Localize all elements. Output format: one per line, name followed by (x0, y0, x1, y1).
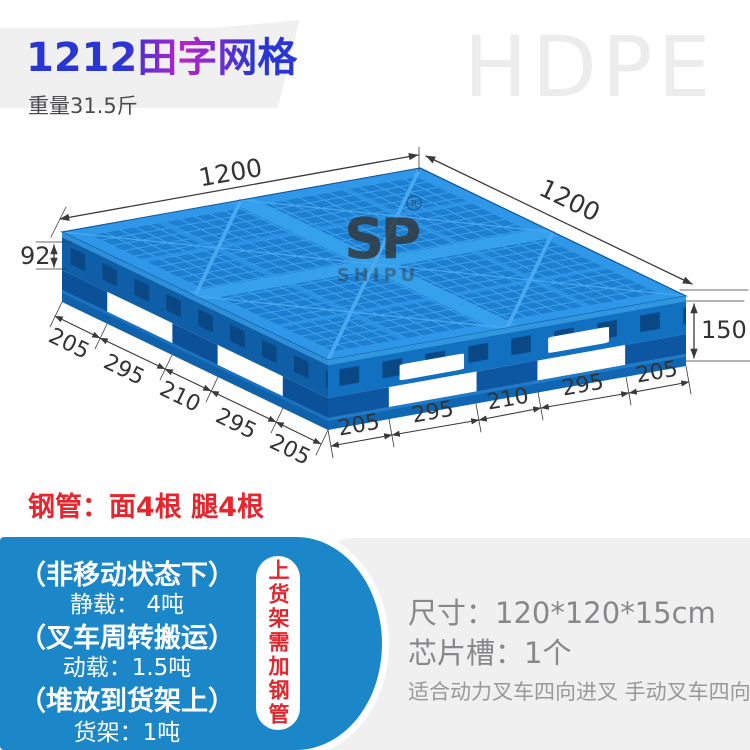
brand-name: SHIPU (337, 265, 420, 286)
product-image: 1212田字网格 重量31.5斤 HDPE (0, 0, 750, 750)
dim-left-295b: 295 (211, 404, 260, 445)
dim-height-150: 150 (701, 316, 747, 344)
dim-top-right-1200: 1200 (535, 173, 605, 227)
steel-pipe-note: 钢管：面4根 腿4根 (28, 485, 264, 524)
dim-left-295a: 295 (99, 350, 148, 391)
load-capacity-panel: （非移动状态下） 静载： 4吨 （叉车周转搬运） 动载：1.5吨 （堆放到货架上… (0, 537, 382, 750)
rack-note-pill: 上货架需加钢管 (256, 556, 300, 730)
dynamic-load-value: 动载：1.5吨 (0, 648, 254, 682)
rack-note-text: 上货架需加钢管 (263, 559, 293, 727)
dim-top-left-1200: 1200 (197, 153, 265, 193)
dim-height-92: 92 (20, 242, 51, 270)
chip-slot-spec: 芯片槽：1个 (408, 630, 571, 672)
dim-left-210: 210 (155, 377, 204, 418)
dim-front-295a: 295 (410, 397, 456, 429)
dim-left-205a: 205 (44, 324, 93, 365)
brand-watermark: SP R SHIPU (337, 196, 421, 286)
dim-front-295b: 295 (560, 370, 606, 402)
brand-logo: SP (344, 207, 419, 272)
fork-entry-note: 适合动力叉车四向进叉 手动叉车四向进叉 (408, 676, 750, 706)
size-spec: 尺寸：120*120*15cm (408, 590, 716, 632)
registered-mark: R (411, 200, 417, 210)
static-load-value: 静载： 4吨 (0, 585, 254, 619)
rack-load-value: 货架：1吨 (0, 713, 254, 747)
dim-left-205b: 205 (265, 430, 314, 471)
